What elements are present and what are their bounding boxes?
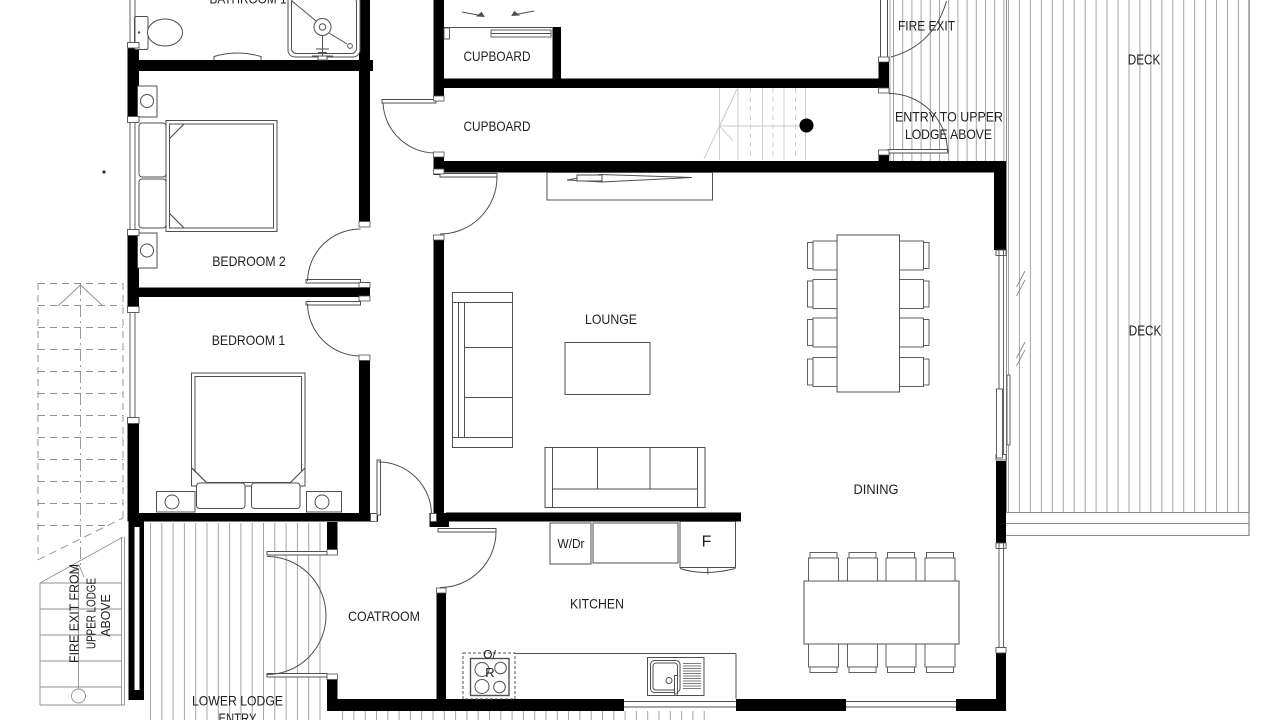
- svg-text:ENTRY TO UPPER: ENTRY TO UPPER: [895, 109, 1003, 125]
- svg-text:W/Dr: W/Dr: [558, 536, 586, 551]
- svg-text:BATHROOM 1: BATHROOM 1: [210, 0, 287, 7]
- svg-text:BEDROOM 2: BEDROOM 2: [212, 253, 286, 269]
- svg-text:BEDROOM 1: BEDROOM 1: [212, 332, 286, 348]
- svg-text:UPPER LODGE: UPPER LODGE: [84, 578, 99, 649]
- svg-text:FIRE EXIT: FIRE EXIT: [898, 18, 955, 34]
- svg-text:COATROOM: COATROOM: [348, 608, 420, 624]
- svg-text:KITCHEN: KITCHEN: [570, 596, 624, 612]
- svg-text:CUPBOARD: CUPBOARD: [464, 118, 531, 134]
- svg-text:LOWER LODGE: LOWER LODGE: [192, 693, 283, 709]
- svg-text:F: F: [702, 534, 712, 551]
- svg-text:ENTRY: ENTRY: [219, 710, 258, 720]
- svg-text:ABOVE: ABOVE: [98, 594, 113, 637]
- svg-text:FIRE EXIT FROM: FIRE EXIT FROM: [67, 564, 82, 663]
- svg-text:DINING: DINING: [854, 481, 899, 497]
- svg-text:DECK: DECK: [1128, 52, 1161, 69]
- svg-text:LODGE ABOVE: LODGE ABOVE: [905, 126, 992, 142]
- svg-text:DECK: DECK: [1129, 323, 1162, 340]
- svg-text:R: R: [485, 665, 494, 680]
- svg-text:LOUNGE: LOUNGE: [585, 311, 637, 327]
- svg-text:O/: O/: [483, 648, 496, 662]
- svg-text:CUPBOARD: CUPBOARD: [464, 48, 531, 64]
